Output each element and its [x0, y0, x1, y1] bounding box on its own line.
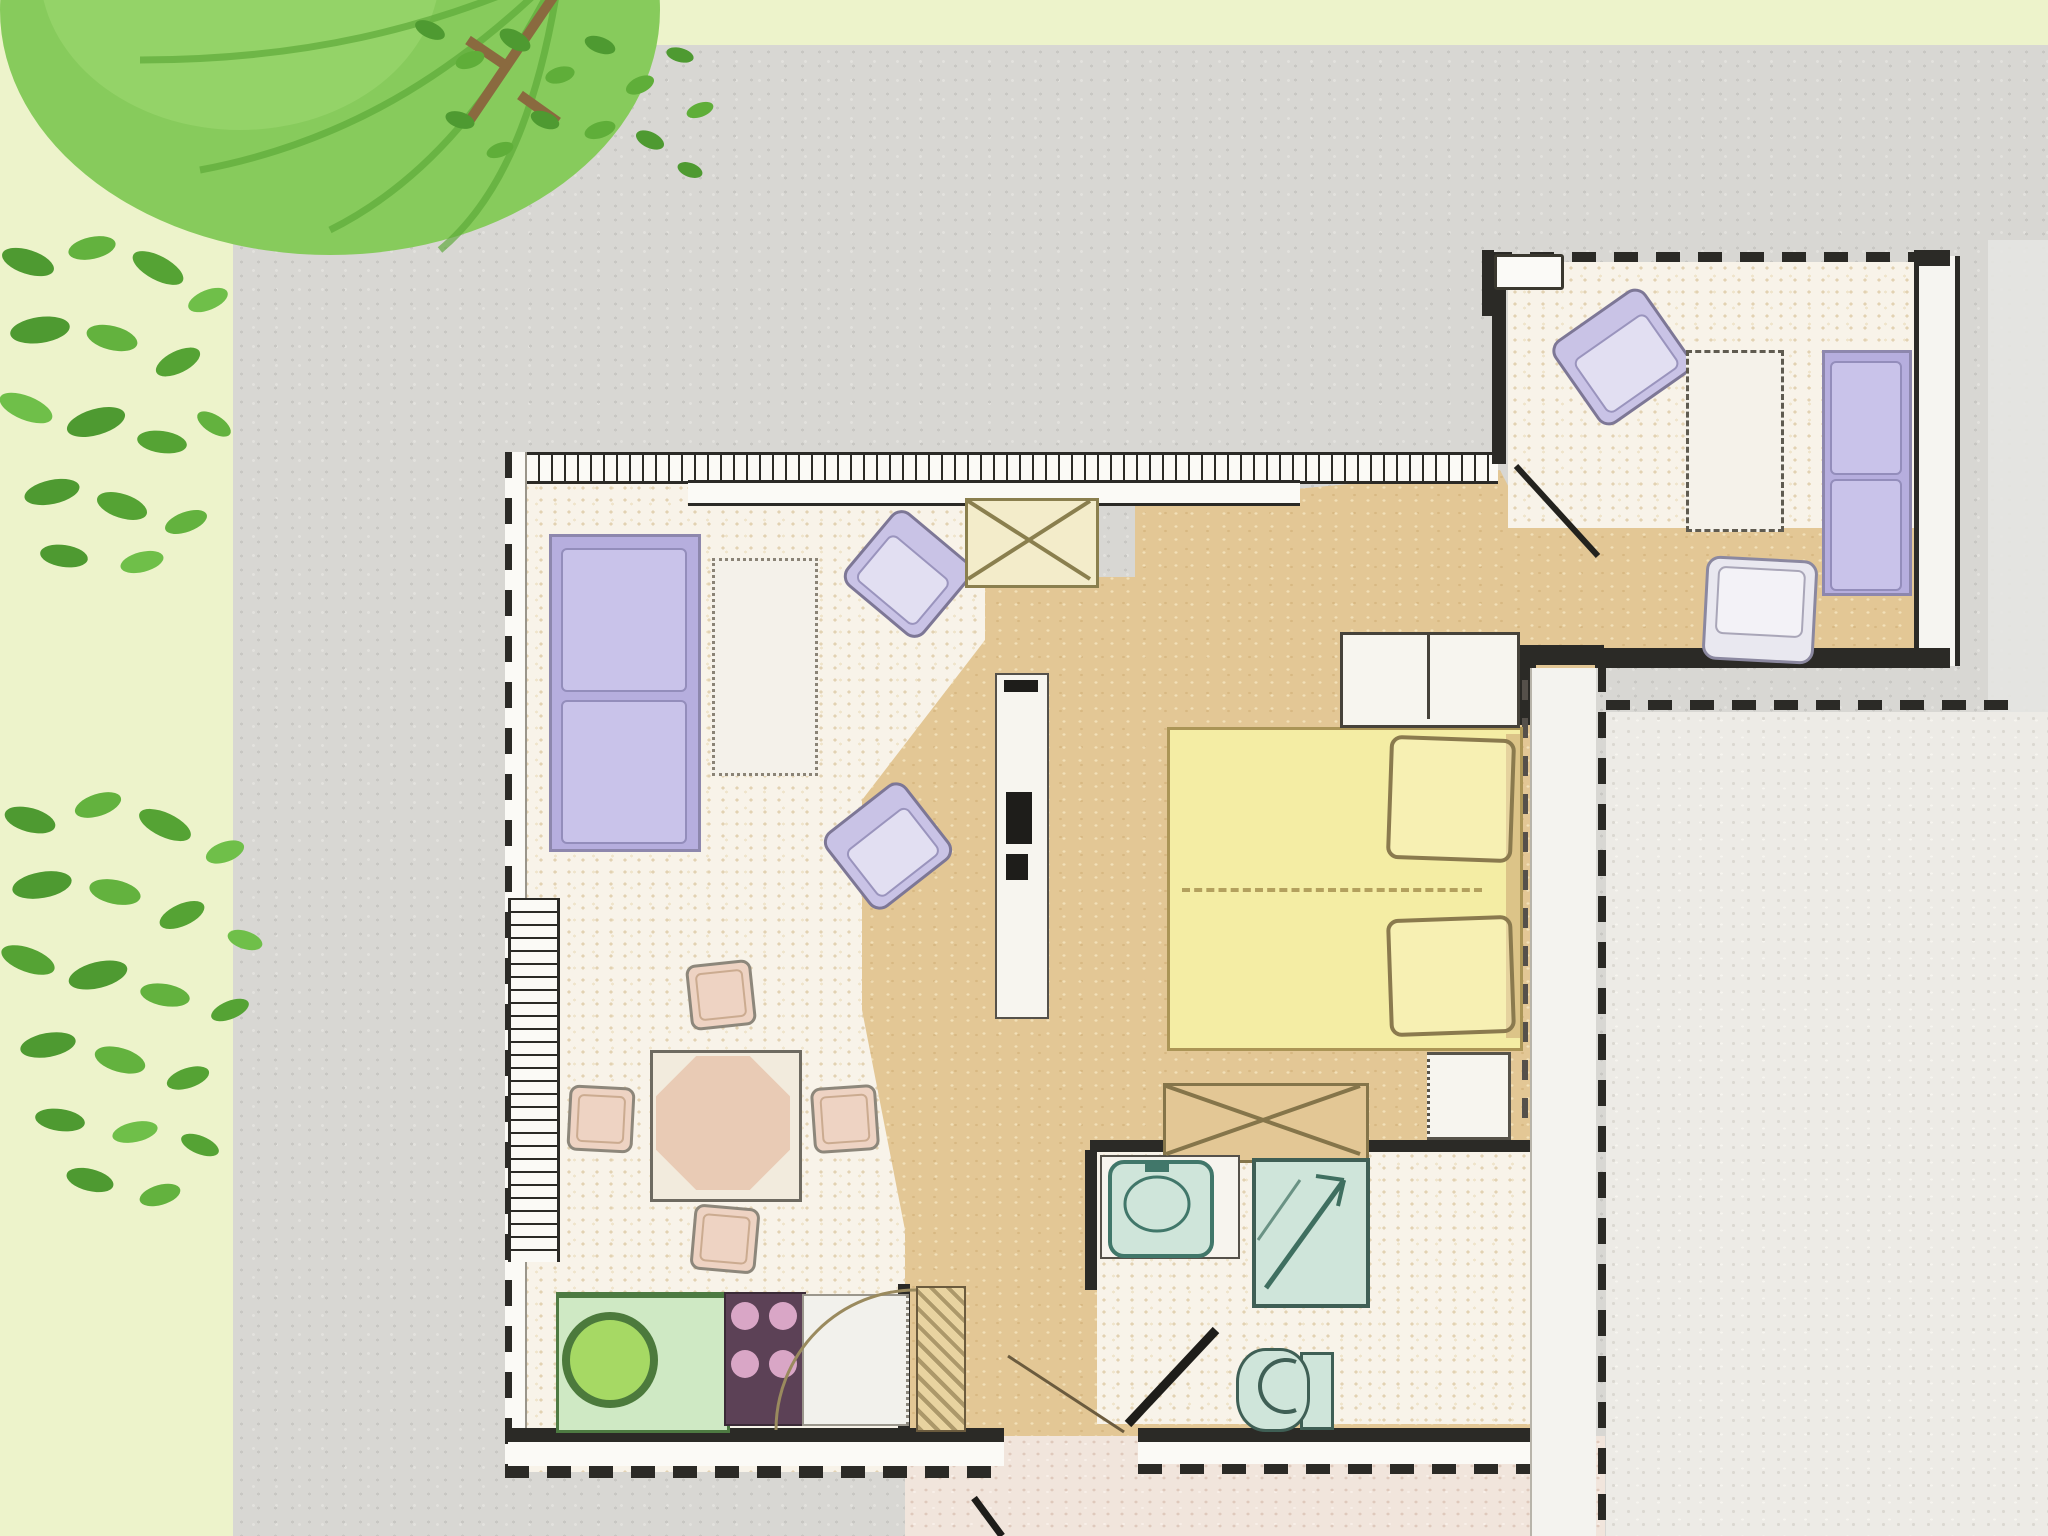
shrub-bottom — [0, 787, 265, 1210]
crossed-cabinet-x — [968, 501, 1090, 579]
kitchen-door-swing-arc — [776, 1290, 916, 1430]
floor-plan-illustration — [0, 0, 2048, 1536]
vestibule-door-mark — [974, 1498, 1002, 1536]
entrance-door-swing — [1008, 1356, 1124, 1432]
shrub-middle — [0, 232, 235, 577]
hall-entry-door-diagonal — [1516, 466, 1598, 556]
bathroom-door-leaf — [1128, 1330, 1216, 1424]
washbasin-faucet — [1145, 1162, 1169, 1172]
overlay-graphics — [0, 0, 2048, 1536]
tree-canopy — [0, 0, 716, 255]
toilet-bowl-curve — [1260, 1360, 1296, 1412]
blanket-chest-x — [1166, 1086, 1360, 1154]
shower-symbol — [1258, 1176, 1344, 1288]
washbasin-bowl — [1125, 1177, 1189, 1231]
